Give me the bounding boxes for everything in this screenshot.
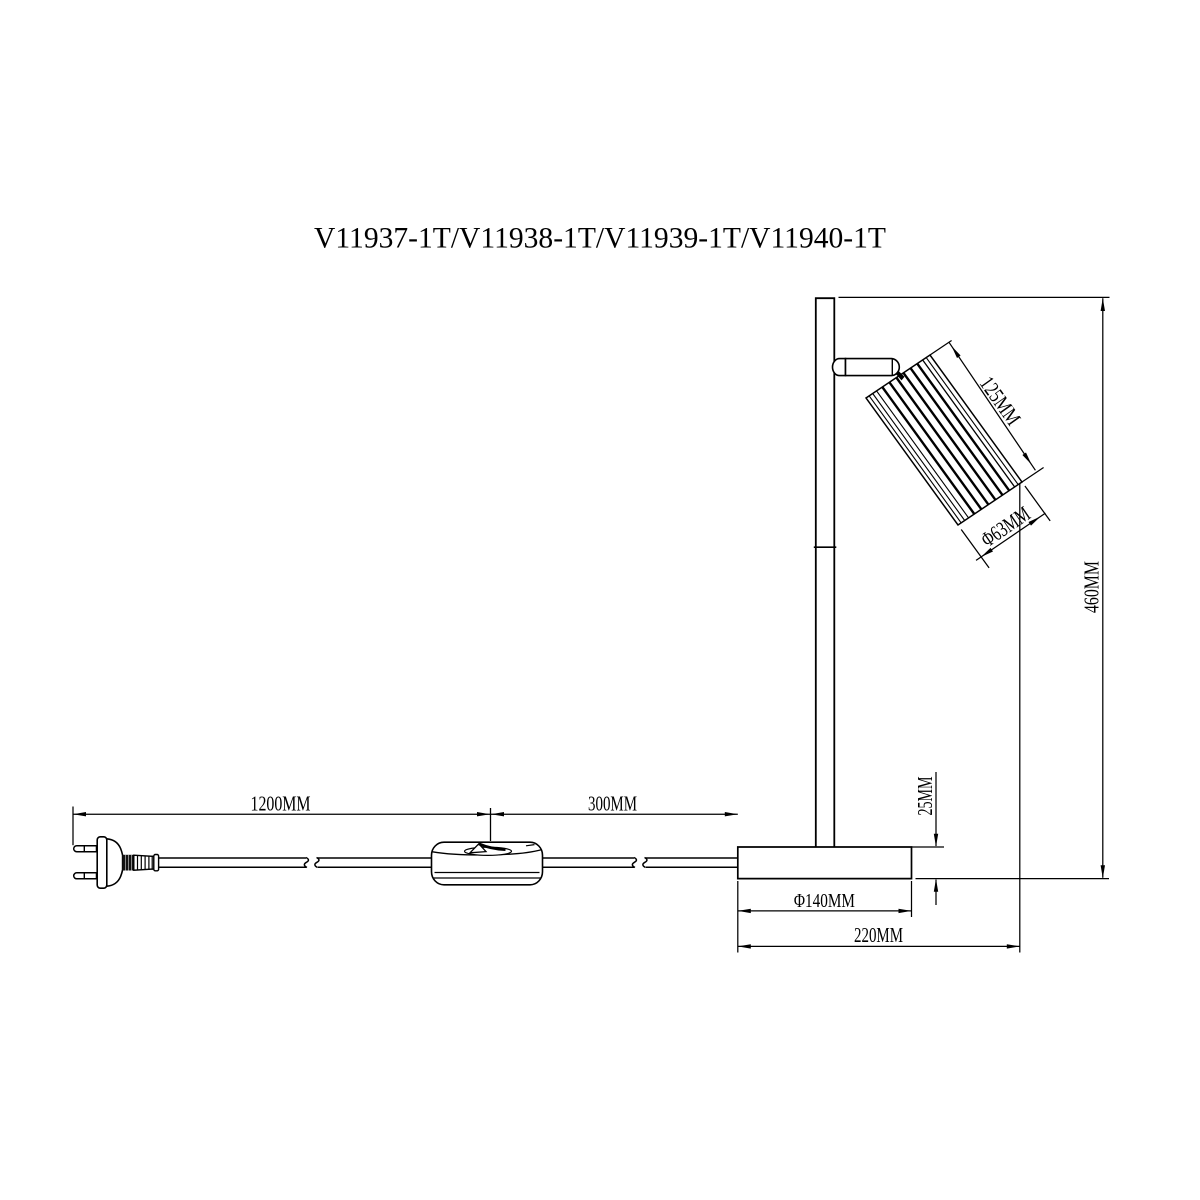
svg-text:220MM: 220MM	[854, 923, 903, 947]
svg-text:25MM: 25MM	[913, 777, 937, 816]
svg-text:300MM: 300MM	[588, 792, 637, 816]
svg-text:460MM: 460MM	[1080, 561, 1104, 613]
svg-text:V11937-1T/V11938-1T/V11939-1T/: V11937-1T/V11938-1T/V11939-1T/V11940-1T	[314, 222, 886, 255]
svg-text:1200MM: 1200MM	[251, 792, 311, 816]
svg-text:Φ140MM: Φ140MM	[794, 890, 855, 912]
